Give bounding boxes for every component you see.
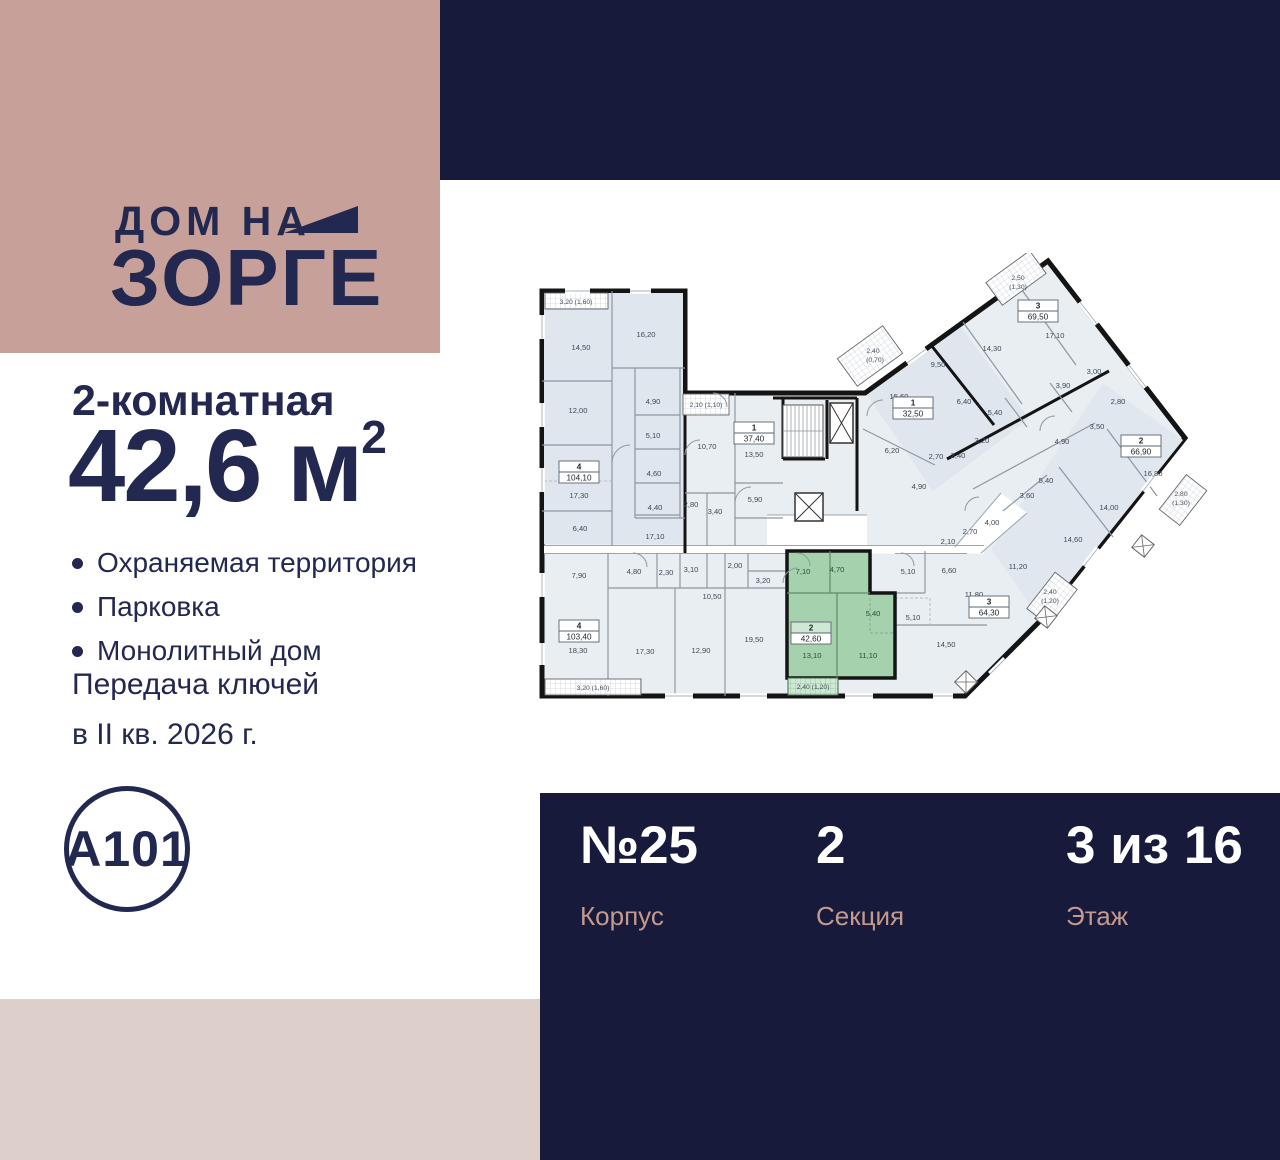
info-floor: 3 из 16 Этаж xyxy=(1066,817,1243,932)
room-area-label: 3,40 xyxy=(708,507,723,516)
apartment-number: 3 xyxy=(987,598,992,607)
feature-label: Охраняемая территория xyxy=(97,547,417,579)
room-area-label: 14,60 xyxy=(1063,535,1082,544)
apartment-number: 4 xyxy=(577,622,582,631)
room-area-label: 5,10 xyxy=(901,567,916,576)
room-area-label: 5,40 xyxy=(866,609,881,618)
room-area-label: 13,10 xyxy=(802,651,821,660)
room-area-label: 12,00 xyxy=(568,406,587,415)
room-area-label: 2,30 xyxy=(659,568,674,577)
room-area-label: 12,90 xyxy=(691,646,710,655)
handover-line1: Передача ключей xyxy=(72,660,319,710)
apartment-number: 2 xyxy=(809,624,814,633)
room-area-label: 3,90 xyxy=(1056,381,1071,390)
area-value: 42,6 xyxy=(68,408,260,523)
room-area-label: 3,10 xyxy=(684,565,699,574)
feature-label: Парковка xyxy=(97,591,220,623)
room-area-label: 16,20 xyxy=(636,330,655,339)
feature-item: Парковка xyxy=(72,585,417,629)
room-area-label: 2,70 xyxy=(929,452,944,461)
area-unit: м xyxy=(287,408,361,523)
room-area-label: 9,50 xyxy=(931,360,946,369)
building-label: Корпус xyxy=(580,901,698,932)
elevator xyxy=(795,493,823,521)
info-section: 2 Секция xyxy=(816,817,904,932)
room-area-label: 2,80 xyxy=(1111,397,1126,406)
room-area-label: 6,20 xyxy=(885,446,900,455)
room-area-label: 2,80 xyxy=(684,500,699,509)
apartment-number: 1 xyxy=(752,424,757,433)
room-area-label: 3,00 xyxy=(1087,367,1102,376)
room-area-label: 14,00 xyxy=(1099,503,1118,512)
apartment-total-area: 42,60 xyxy=(801,635,822,644)
developer-logo-text: А101 xyxy=(65,820,189,878)
stairs xyxy=(783,405,823,457)
room-area-label: 14,50 xyxy=(571,343,590,352)
apartment-total-area: 103,40 xyxy=(566,633,591,642)
room-area-label: 2,70 xyxy=(963,527,978,536)
room-area-label: 13,50 xyxy=(744,450,763,459)
balcony-area-label: (0,70) xyxy=(866,357,884,364)
floor-plan-svg: 14,5016,2012,004,905,104,604,402,803,401… xyxy=(535,253,1280,703)
info-building: №25 Корпус xyxy=(580,817,698,932)
floor-label: Этаж xyxy=(1066,901,1243,932)
apartment-total-area: 66,90 xyxy=(1131,448,1152,457)
corridor xyxy=(544,546,984,554)
room-area-label: 4,90 xyxy=(912,482,927,491)
info-panel: №25 Корпус 2 Секция 3 из 16 Этаж xyxy=(540,793,1280,1160)
room-area-label: 17,10 xyxy=(645,532,664,541)
section-value: 2 xyxy=(816,817,904,875)
listing-area: 42,6 м2 xyxy=(68,414,387,517)
balcony-area-label: 2,80 xyxy=(1174,491,1187,498)
room-area-label: 6,40 xyxy=(573,524,588,533)
beige-background-block xyxy=(0,999,540,1160)
balcony-area-label: (1,20) xyxy=(1041,598,1059,605)
floor-plan: 14,5016,2012,004,905,104,604,402,803,401… xyxy=(535,253,1280,703)
room-area-label: 6,40 xyxy=(957,397,972,406)
room-area-label: 5,10 xyxy=(646,431,661,440)
room-area-label: 7,90 xyxy=(572,571,587,580)
room-area-label: 3,60 xyxy=(1020,491,1035,500)
room-area-label: 4,40 xyxy=(648,503,663,512)
brand-logo-line2: ЗОРГЕ xyxy=(110,238,383,318)
room-area-label: 4,90 xyxy=(646,397,661,406)
apartment-total-area: 37,40 xyxy=(744,435,765,444)
room-area-label: 10,70 xyxy=(697,442,716,451)
room-area-label: 14,30 xyxy=(982,344,1001,353)
room-area-label: 18,30 xyxy=(568,646,587,655)
balcony-area-label: 2,10 (1,10) xyxy=(690,402,723,409)
apartment-number: 4 xyxy=(577,463,582,472)
balcony-area-label: 2,40 (1,20) xyxy=(797,684,830,691)
bullet-icon xyxy=(72,646,83,657)
bullet-icon xyxy=(72,602,83,613)
apartment-total-area: 104,10 xyxy=(566,474,591,483)
developer-logo: А101 xyxy=(64,786,190,912)
floor-value: 3 из 16 xyxy=(1066,817,1243,875)
room-area-label: 4,70 xyxy=(830,565,845,574)
area-exponent: 2 xyxy=(361,411,387,463)
feature-list: Охраняемая территория Парковка Монолитны… xyxy=(72,541,417,673)
room-area-label: 2,40 xyxy=(951,451,966,460)
feature-item: Охраняемая территория xyxy=(72,541,417,585)
handover-date: Передача ключей в II кв. 2026 г. xyxy=(72,660,319,760)
apartment-total-area: 64,30 xyxy=(979,609,1000,618)
navy-background-block xyxy=(440,0,1280,180)
elevator xyxy=(830,403,853,443)
room-area-label: 5,40 xyxy=(1039,476,1054,485)
section-label: Секция xyxy=(816,901,904,932)
room-area-label: 11,20 xyxy=(1009,562,1027,571)
room-area-label: 11,10 xyxy=(859,651,877,660)
building-value: №25 xyxy=(580,817,698,875)
room-area-label: 19,50 xyxy=(744,635,763,644)
room-area-label: 6,60 xyxy=(942,566,957,575)
balcony-area-label: (1,30) xyxy=(1172,500,1190,507)
balcony-area-label: 2,50 xyxy=(1011,275,1024,282)
room-area-label: 3,50 xyxy=(1090,422,1105,431)
room-area-label: 4,00 xyxy=(985,518,1000,527)
balcony-area-label: 2,40 xyxy=(1043,589,1056,596)
room-area-label: 7,10 xyxy=(796,567,811,576)
handover-line2: в II кв. 2026 г. xyxy=(72,710,319,760)
room-area-label: 14,50 xyxy=(936,640,955,649)
window-bay xyxy=(1132,535,1154,557)
room-area-label: 2,00 xyxy=(728,561,743,570)
room-area-label: 16,80 xyxy=(1143,469,1162,478)
room-area-label: 4,90 xyxy=(1055,437,1070,446)
apartment-total-area: 32,50 xyxy=(903,410,924,419)
apartment-number: 1 xyxy=(911,399,916,408)
balcony-area-label: 3,20 (1,60) xyxy=(560,299,593,306)
bullet-icon xyxy=(72,558,83,569)
room-area-label: 17,30 xyxy=(635,647,654,656)
room-area-label: 5,10 xyxy=(906,613,921,622)
room-area-label: 4,60 xyxy=(647,469,662,478)
balcony-area-label: 3,20 (1,60) xyxy=(577,685,610,692)
room-area-label: 4,80 xyxy=(627,567,642,576)
apartment-number: 3 xyxy=(1036,302,1041,311)
room-area-label: 3,20 xyxy=(975,436,990,445)
room-area-label: 3,20 xyxy=(756,576,771,585)
room-area-label: 2,10 xyxy=(941,537,956,546)
listing-banner: { "brand": { "logo_top": "ДОМ НА", "logo… xyxy=(0,0,1280,1160)
room-area-label: 17,10 xyxy=(1045,331,1064,340)
apartment-number: 2 xyxy=(1139,437,1144,446)
apartment-total-area: 69,50 xyxy=(1028,313,1049,322)
balcony-area-label: 2,40 xyxy=(866,348,879,355)
room-area-label: 17,30 xyxy=(569,491,588,500)
room-area-label: 10,50 xyxy=(702,592,721,601)
room-area-label: 5,90 xyxy=(748,495,763,504)
room-area-label: 5,40 xyxy=(988,408,1003,417)
balcony-area-label: (1,30) xyxy=(1009,284,1027,291)
